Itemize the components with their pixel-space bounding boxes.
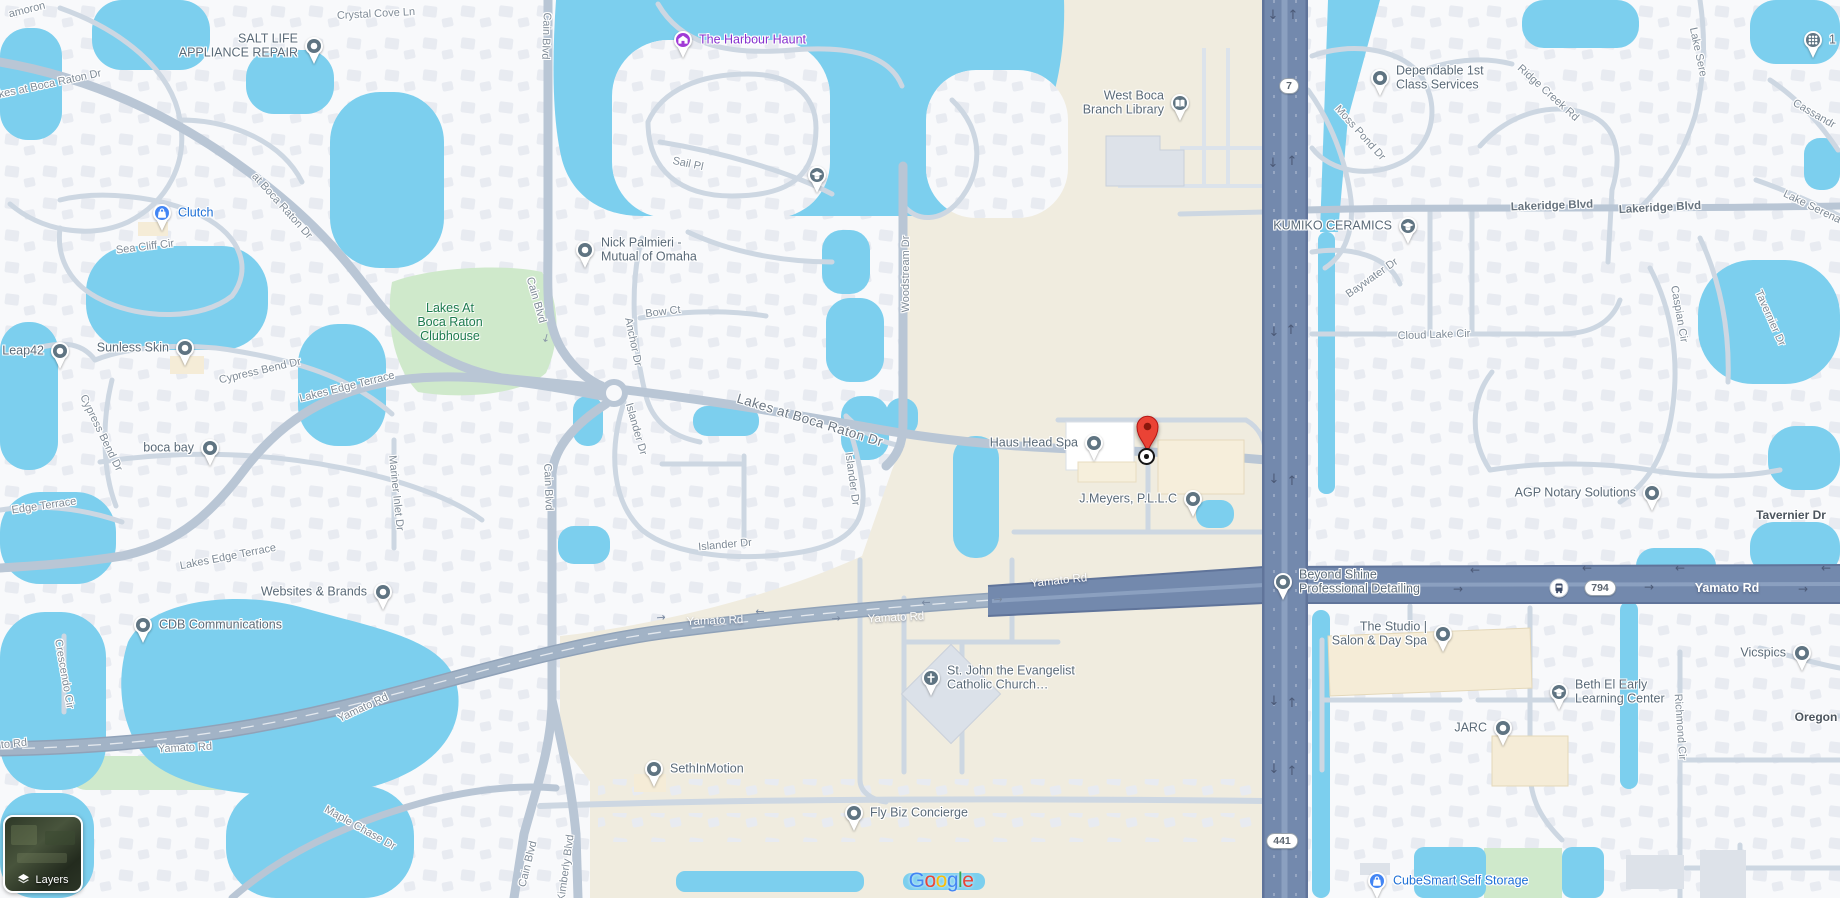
dot-pin-icon [1367,65,1393,99]
satellite-thumb-patch [11,825,37,845]
google-logo-letter: g [947,869,958,892]
street-label: Yamato Rd [867,611,924,626]
street-label: Tavernier Dr [1752,288,1787,348]
street-label: Lake Serena [1781,188,1840,226]
street-label: Woodstream Dr [900,236,912,313]
dot-pin-icon [1081,430,1107,464]
house-pin-icon [670,27,696,61]
street-label: Baywater Dr [1344,256,1400,301]
library-pin-icon [1167,90,1193,124]
dot-pin-icon [301,33,327,67]
street-label: Sail Pl [671,155,704,173]
poi-label: KUMIKO CERAMICS [1273,219,1392,233]
street-label: Lakes Edge Terrace [298,369,396,404]
dot-pin-icon [370,579,396,613]
street-label: Islander Dr [842,452,861,507]
poi-label: Nick Palmieri -Mutual of Omaha [601,237,697,264]
dot-pin-icon [130,612,156,646]
poi-label: Websites & Brands [261,585,367,599]
route-shield-794: 794 [1584,580,1616,596]
street-label: Islander Dr [623,401,649,456]
street-label: Cypress Bend Dr [218,356,302,387]
street-label: Yamato Rd [158,741,213,756]
bag-pin-icon [149,200,175,234]
dots-pin-icon [1800,27,1826,61]
street-label: Cain Blvd [524,276,549,325]
poi-label: 1 [1829,33,1836,47]
street-label: Crystal Cove Ln [337,6,416,22]
poi-label: J.Meyers, P.L.L.C [1079,492,1177,506]
street-label: Crescendo Cir [52,638,76,709]
street-label: Cain Blvd [539,12,553,59]
poi-label: Dependable 1stClass Services [1396,65,1484,92]
location-target-icon [1138,448,1155,465]
poi-label: SALT LIFEAPPLIANCE REPAIR [179,33,298,60]
street-label: Bow Ct [645,304,682,320]
street-label: Edge Terrace [11,496,77,517]
street-label: Cloud Lake Cir [1397,328,1470,343]
street-label: Caspian Cir [1668,285,1690,344]
street-label: at Boca Raton Dr [249,171,314,242]
street-label: Kimberly Blvd [555,834,576,898]
street-label: Tavernier Dr [1756,508,1826,522]
church-pin-icon [918,665,944,699]
dot-pin-icon [172,335,198,369]
area-label-lakes-at-boca-raton-clubhouse: Lakes AtBoca RatonClubhouse [417,301,482,343]
poi-label: Haus Head Spa [990,436,1078,450]
street-label: Lakeridge Blvd [1619,200,1702,216]
map-canvas[interactable]: ↓↑ ↓↑ ↓↑ ↓↑ ↓↑ ↓↑ ←←←← →→→ → → → ← ← ↓ a… [0,0,1840,898]
layers-icon [17,873,30,886]
street-label: Cypress Bend Dr [77,393,125,474]
dot-pin-icon [641,756,667,790]
poi-label: boca bay [143,441,194,455]
street-label: Ridge Creek Rd [1515,62,1581,123]
street-label: amoron [7,0,46,20]
dot-pin-icon [1270,569,1296,603]
street-label: Mariner Inlet Dr [386,455,406,532]
dot-pin-icon [1180,486,1206,520]
street-label: Anchor Dr [622,317,644,368]
dot-pin-icon [1490,715,1516,749]
street-label: kes at Boca Raton Dr [0,67,102,100]
street-label: Islander Dr [698,537,753,554]
street-label: Richmond Cir [1672,693,1689,760]
google-logo-letter: o [924,869,935,892]
street-label: Lake Sere [1687,26,1709,78]
street-label: Moss Pond Dr [1332,103,1388,163]
poi-label: The Harbour Haunt [699,33,806,47]
poi-label: AGP Notary Solutions [1515,486,1636,500]
dot-pin-icon [1789,640,1815,674]
bag-pin-icon [1364,868,1390,898]
street-label: Lakes Edge Terrace [179,542,277,572]
poi-label: St. John the EvangelistCatholic Church… [947,665,1075,692]
route-shield-441: 441 [1266,833,1298,849]
school-pin-icon [804,162,830,196]
poi-label: SethInMotion [670,762,744,776]
street-label: Yamato Rd [686,614,743,628]
poi-label: Leap42 [2,344,44,358]
street-label: Cain Blvd [541,463,555,510]
school-pin-icon [1395,213,1421,247]
poi-label: Clutch [178,206,213,220]
layers-button[interactable]: Layers [3,815,83,893]
street-label: Oregon R [1795,710,1840,724]
street-label: Cassandr [1791,97,1838,131]
street-label: Yamato Rd [1695,581,1760,595]
route-shield-7: 7 [1279,78,1299,94]
poi-label: CubeSmart Self Storage [1393,874,1529,888]
google-logo-letter: G [909,869,925,892]
dot-pin-icon [197,435,223,469]
google-logo[interactable]: Google [909,869,974,893]
dot-pin-icon [572,237,598,271]
poi-label: Beyond ShineProfessional Detailing [1299,569,1420,596]
street-label: Lakes at Boca Raton Dr [735,391,885,450]
layers-button-label: Layers [35,874,68,886]
street-label: Cain Blvd [516,840,539,889]
poi-label: Sunless Skin [97,341,169,355]
google-logo-letter: e [962,869,973,892]
street-label: to Rd [0,737,27,752]
satellite-thumb-patch [17,853,67,863]
poi-label: The Studio |Salon & Day Spa [1332,621,1427,648]
dot-pin-icon [47,338,73,372]
street-label: Lakeridge Blvd [1511,199,1594,214]
poi-label: JARC [1454,721,1487,735]
poi-label: Beth El EarlyLearning Center [1575,679,1665,706]
street-label: Yamato Rd [336,691,390,725]
satellite-thumb-patch [45,831,75,845]
poi-label: CDB Communications [159,618,282,632]
dot-pin-icon [841,800,867,834]
street-label: Sea Cliff Cir [115,237,175,256]
poi-label: Vicspics [1740,646,1786,660]
google-logo-letter: o [936,869,947,892]
dot-pin-icon [1639,480,1665,514]
poi-label: West BocaBranch Library [1083,90,1164,117]
bus-stop-icon[interactable] [1550,579,1569,598]
map-labels-layer: amoronCrystal Cove LnCain Blvdkes at Boc… [0,0,1840,898]
dot-pin-icon [1430,621,1456,655]
poi-label: Fly Biz Concierge [870,806,968,820]
school-pin-icon [1546,679,1572,713]
street-label: Yamato Rd [1030,572,1088,590]
street-label: Maple Chase Dr [322,803,397,852]
